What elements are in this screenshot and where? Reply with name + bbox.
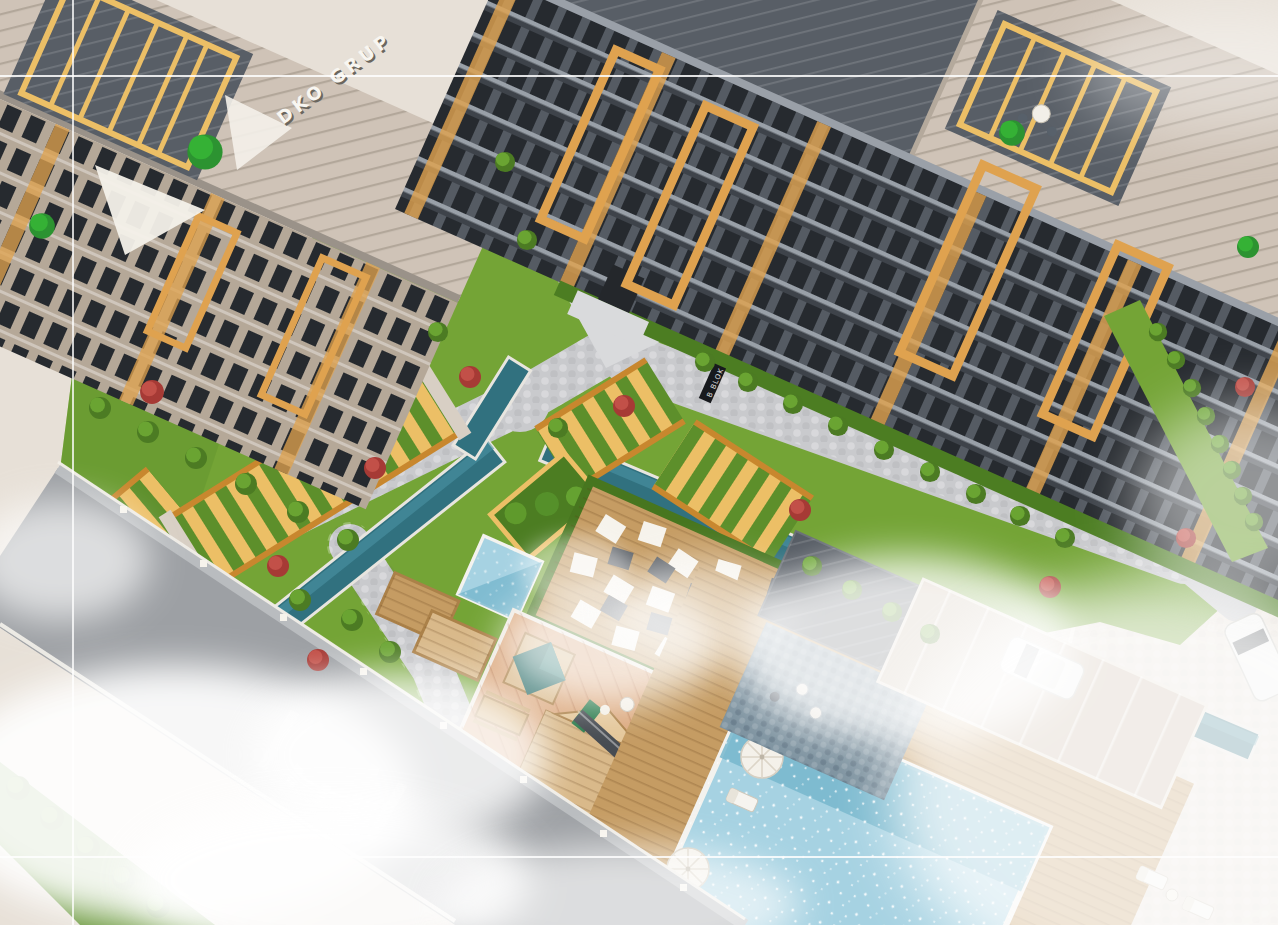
red-bush	[267, 555, 289, 577]
red-bush	[307, 649, 329, 671]
roof-tree	[999, 120, 1025, 146]
red-bush	[613, 395, 635, 417]
roof-tree	[187, 134, 222, 169]
roof-tree	[1237, 236, 1259, 258]
red-bush	[140, 380, 164, 404]
red-bush	[789, 499, 811, 521]
red-bush	[459, 366, 481, 388]
red-bush	[364, 457, 386, 479]
roof-tree	[29, 213, 55, 239]
red-bush	[1235, 377, 1255, 397]
aerial-render-canvas: B BLOK DKO GRUP DKO GRUP	[0, 0, 1278, 925]
scene-svg: B BLOK DKO GRUP DKO GRUP	[0, 0, 1278, 925]
